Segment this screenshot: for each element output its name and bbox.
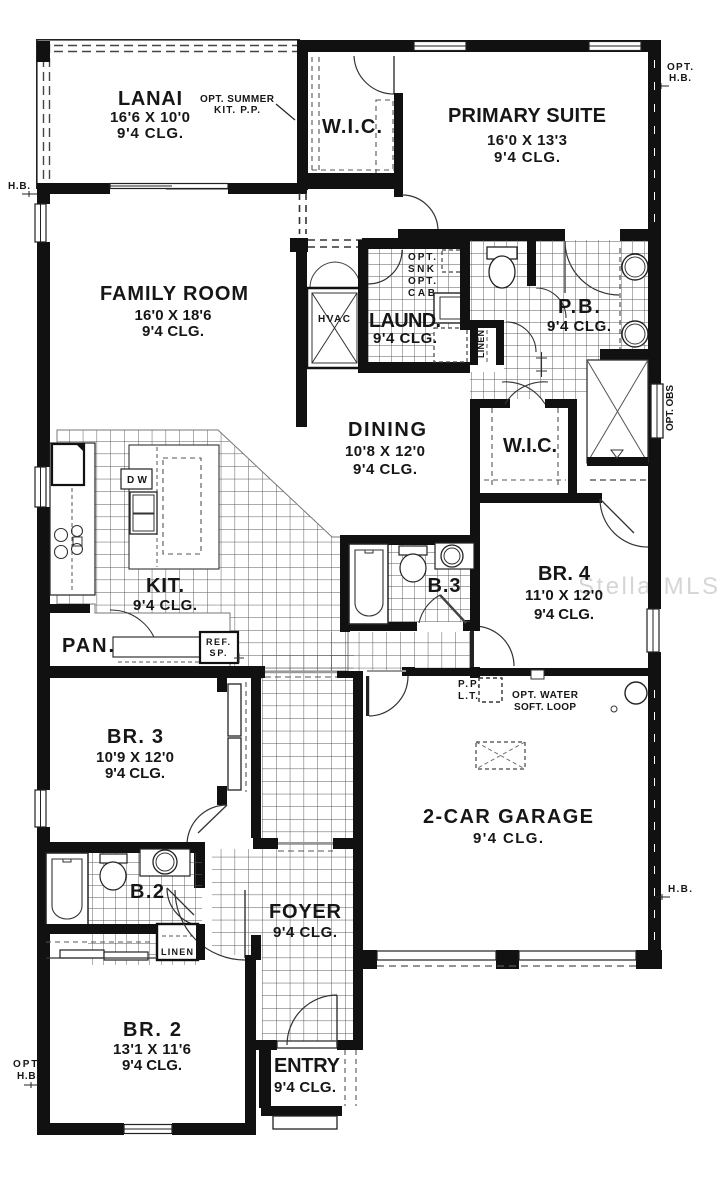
- svg-text:KIT.: KIT.: [146, 575, 184, 597]
- svg-text:9'4 CLG.: 9'4 CLG.: [534, 606, 594, 623]
- svg-text:OPT. WATER: OPT. WATER: [512, 690, 579, 701]
- svg-text:9'4 CLG.: 9'4 CLG.: [105, 765, 165, 782]
- svg-text:2-CAR GARAGE: 2-CAR GARAGE: [423, 806, 593, 828]
- svg-text:13'1 X 11'6: 13'1 X 11'6: [113, 1041, 191, 1058]
- svg-text:16'0 X 13'3: 16'0 X 13'3: [487, 132, 567, 149]
- svg-text:P.B.: P.B.: [558, 296, 600, 318]
- svg-text:9'4 CLG.: 9'4 CLG.: [142, 323, 204, 340]
- svg-text:9'4 CLG.: 9'4 CLG.: [494, 149, 560, 166]
- svg-text:HVAC: HVAC: [318, 314, 350, 325]
- svg-text:SP.: SP.: [210, 648, 227, 658]
- svg-text:LINEN: LINEN: [161, 947, 193, 957]
- svg-text:FOYER: FOYER: [269, 901, 342, 923]
- svg-text:9'4 CLG.: 9'4 CLG.: [273, 924, 337, 941]
- svg-text:SNK: SNK: [408, 264, 435, 275]
- svg-text:9'4 CLG.: 9'4 CLG.: [353, 461, 417, 478]
- svg-text:W.I.C.: W.I.C.: [322, 116, 382, 138]
- svg-text:10'9 X 12'0: 10'9 X 12'0: [96, 749, 174, 766]
- svg-text:9'4 CLG.: 9'4 CLG.: [117, 125, 183, 142]
- svg-text:LAUND.: LAUND.: [369, 310, 441, 332]
- svg-text:9'4 CLG.: 9'4 CLG.: [547, 318, 611, 335]
- svg-text:BR. 3: BR. 3: [107, 726, 163, 748]
- svg-text:H.B.: H.B.: [668, 884, 692, 895]
- svg-text:B.2: B.2: [130, 881, 164, 903]
- svg-text:10'8 X 12'0: 10'8 X 12'0: [345, 443, 425, 460]
- svg-text:OPT. SUMMER: OPT. SUMMER: [200, 94, 275, 105]
- svg-text:H.B.: H.B.: [17, 1071, 39, 1082]
- svg-text:CAB: CAB: [408, 288, 435, 299]
- svg-text:LINEN: LINEN: [476, 330, 486, 358]
- svg-text:BR. 2: BR. 2: [123, 1019, 181, 1041]
- svg-text:FAMILY ROOM: FAMILY ROOM: [100, 283, 248, 305]
- svg-text:H.B.: H.B.: [8, 181, 30, 192]
- svg-text:16'6 X 10'0: 16'6 X 10'0: [110, 109, 190, 126]
- svg-text:9'4 CLG.: 9'4 CLG.: [274, 1079, 336, 1096]
- svg-text:DINING: DINING: [348, 419, 426, 441]
- svg-text:9'4 CLG.: 9'4 CLG.: [133, 597, 197, 614]
- svg-text:9'4 CLG.: 9'4 CLG.: [373, 330, 437, 347]
- svg-text:LANAI: LANAI: [118, 88, 182, 110]
- svg-text:P.P.: P.P.: [458, 679, 480, 690]
- svg-text:ENTRY: ENTRY: [274, 1055, 341, 1077]
- svg-text:9'4 CLG.: 9'4 CLG.: [122, 1057, 182, 1074]
- svg-text:OPT.: OPT.: [667, 62, 693, 73]
- svg-text:PAN.: PAN.: [62, 635, 114, 657]
- svg-text:BR. 4: BR. 4: [538, 563, 591, 585]
- svg-text:OPT. OBS: OPT. OBS: [665, 385, 676, 431]
- svg-text:H.B.: H.B.: [669, 73, 691, 84]
- svg-text:DW: DW: [127, 475, 148, 486]
- svg-text:16'0 X 18'6: 16'0 X 18'6: [135, 307, 212, 324]
- svg-text:9'4 CLG.: 9'4 CLG.: [473, 830, 543, 847]
- svg-text:KIT. P.P.: KIT. P.P.: [214, 105, 260, 116]
- svg-text:SOFT. LOOP: SOFT. LOOP: [514, 702, 576, 713]
- svg-text:B.3: B.3: [428, 575, 461, 597]
- svg-text:W.I.C.: W.I.C.: [503, 435, 557, 457]
- svg-text:11'0 X 12'0: 11'0 X 12'0: [525, 587, 603, 604]
- svg-text:PRIMARY SUITE: PRIMARY SUITE: [448, 105, 606, 127]
